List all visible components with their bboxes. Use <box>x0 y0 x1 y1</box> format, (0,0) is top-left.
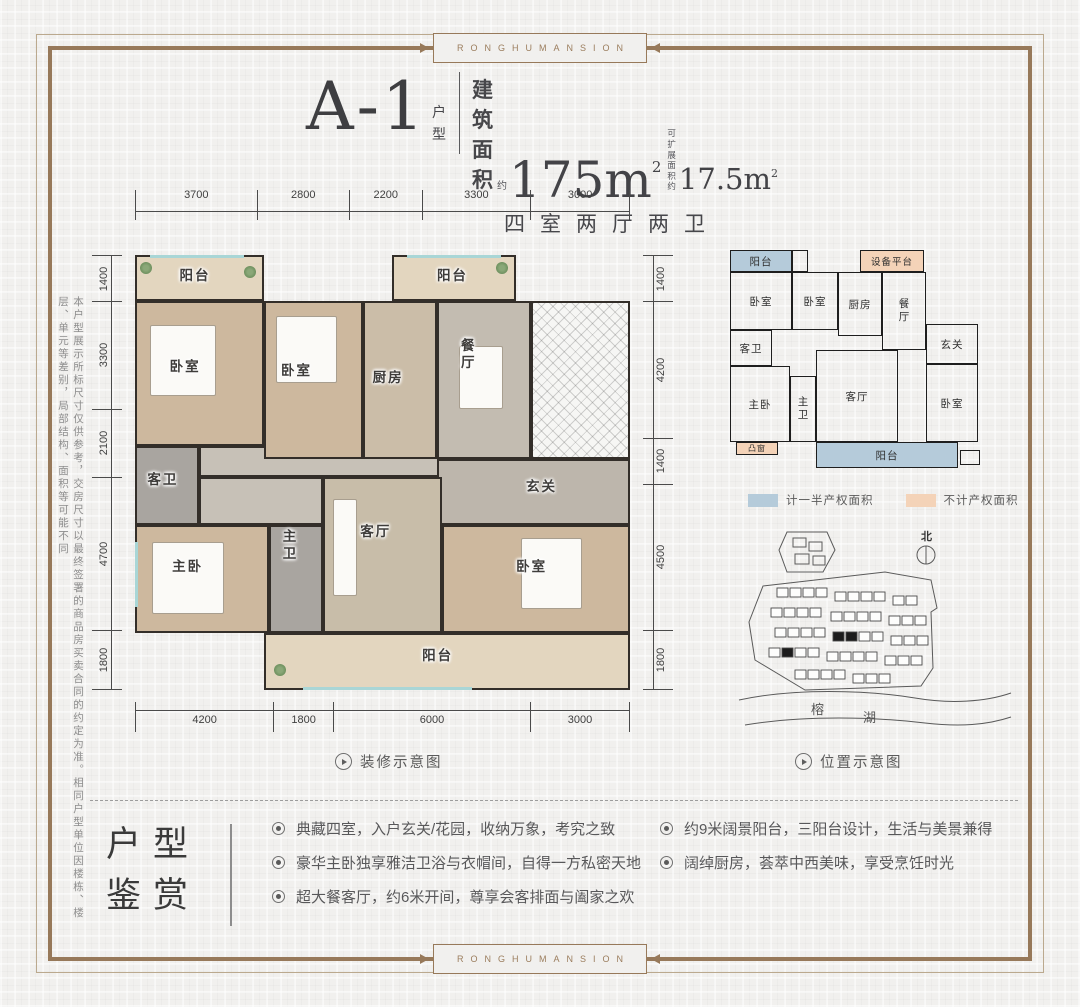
legend-label: 计一半产权面积 <box>786 492 874 508</box>
dim-label: 4500 <box>655 545 667 569</box>
header-divider <box>459 72 460 154</box>
feature-text: 典藏四室，入户玄关/花园，收纳万象，考究之致 <box>296 818 615 839</box>
unit-name: A-1 <box>306 68 427 145</box>
legend-item: 计一半产权面积 <box>748 492 874 508</box>
legend-swatch-half <box>748 494 778 507</box>
detached-building-cluster <box>779 532 835 572</box>
dim-label: 4200 <box>655 358 667 382</box>
features-list-left: 典藏四室，入户玄关/花园，收纳万象，考究之致 豪华主卧独享雅洁卫浴与衣帽间，自得… <box>272 818 652 907</box>
dim-label: 4200 <box>136 714 273 726</box>
sch-shaft <box>792 250 808 272</box>
dim-segment: 3300 <box>422 190 531 220</box>
room-label: 主卫 <box>797 396 809 421</box>
dim-segment: 2800 <box>257 190 349 220</box>
bullet-circle-icon <box>272 890 285 903</box>
dim-segment: 1800 <box>273 702 333 732</box>
room-label: 客卫 <box>740 341 763 356</box>
dimension-row-top: 3700 2800 2200 3300 3000 <box>135 190 630 220</box>
lake: 榕 湖 <box>739 692 1011 726</box>
arrow-left-icon <box>651 43 660 53</box>
room-label: 阳台 <box>437 264 468 284</box>
site-plan-map: 北 <box>735 528 1015 743</box>
window-strip <box>407 255 501 258</box>
dim-segment: 4500 <box>643 484 673 630</box>
room-label: 厨房 <box>849 297 872 312</box>
room-label: 玄关 <box>941 337 964 352</box>
features-title: 户型 鉴赏 <box>106 820 200 922</box>
schematic-floor-plan: 阳台 设备平台 卧室 卧室 厨房 餐厅 客卫 玄关 主卧 主卫 客厅 卧室 阳台… <box>722 246 1012 478</box>
dim-label: 2800 <box>258 189 349 201</box>
brand-name: RONGHUMANSION <box>433 33 647 63</box>
dim-label: 1800 <box>655 648 667 672</box>
dim-label: 2200 <box>350 189 422 201</box>
feature-text: 豪华主卧独享雅洁卫浴与衣帽间，自得一方私密天地 <box>296 852 641 873</box>
lake-label: 榕 <box>811 702 827 717</box>
room-label: 客卫 <box>147 468 178 488</box>
sch-dining: 餐厅 <box>882 272 926 350</box>
window-strip <box>135 542 138 607</box>
dimension-column-right: 1400 4200 1400 4500 1800 <box>643 255 673 690</box>
dim-label: 3000 <box>531 189 629 201</box>
expand-note-line2: 面积约 <box>667 160 676 192</box>
dim-label: 3700 <box>136 189 257 201</box>
area-prefix: 建筑面积 <box>472 74 495 204</box>
room-label: 主卧 <box>172 555 203 575</box>
sch-bedroom-2: 卧室 <box>792 272 838 330</box>
feature-item: 阔绰厨房，荟萃中西美味，享受烹饪时光 <box>660 852 1020 873</box>
dim-label: 3000 <box>531 714 629 726</box>
window-strip <box>150 255 244 258</box>
room-label: 餐厅 <box>898 298 910 323</box>
dim-segment: 1800 <box>92 630 122 690</box>
sch-equipment-platform: 设备平台 <box>860 250 924 272</box>
feature-text: 阔绰厨房，荟萃中西美味，享受烹饪时光 <box>684 852 954 873</box>
dim-segment: 3000 <box>530 702 630 732</box>
dim-label: 1400 <box>655 449 667 473</box>
sch-bay-window: 凸窗 <box>736 442 778 455</box>
feature-item: 豪华主卧独享雅洁卫浴与衣帽间，自得一方私密天地 <box>272 852 652 873</box>
sch-bedroom-1: 卧室 <box>730 272 792 330</box>
features-list-right: 约9米阔景阳台，三阳台设计，生活与美景兼得 阔绰厨房，荟萃中西美味，享受烹饪时光 <box>660 818 1020 873</box>
dim-label: 3300 <box>98 343 110 367</box>
legend-swatch-none <box>906 494 936 507</box>
arrow-right-icon <box>420 954 429 964</box>
sch-balcony-top: 阳台 <box>730 250 792 272</box>
window-strip <box>303 687 471 690</box>
site-buildings <box>769 588 928 683</box>
room-label: 卧室 <box>170 355 201 375</box>
dim-label: 4700 <box>98 542 110 566</box>
dim-segment: 3300 <box>92 301 122 408</box>
features-title-line2: 鉴赏 <box>106 871 200 922</box>
site-plan-caption: 位置示意图 <box>795 751 903 772</box>
feature-item: 典藏四室，入户玄关/花园，收纳万象，考究之致 <box>272 818 652 839</box>
feature-text: 约9米阔景阳台，三阳台设计，生活与美景兼得 <box>684 818 992 839</box>
dim-segment: 4200 <box>643 301 673 437</box>
sch-bedroom-3: 卧室 <box>926 364 978 442</box>
dim-segment: 1400 <box>92 255 122 301</box>
dim-segment: 3700 <box>135 190 257 220</box>
bullet-circle-icon <box>660 822 673 835</box>
sch-master-bath: 主卫 <box>790 376 816 442</box>
plant-icon <box>244 266 256 278</box>
room-label: 卧室 <box>804 294 827 309</box>
features-title-line1: 户型 <box>106 820 200 871</box>
brand-ribbon-bottom: RONGHUMANSION <box>420 942 660 976</box>
stair-elevator-shaft <box>531 301 630 460</box>
dim-segment: 1400 <box>643 255 673 301</box>
disclaimer-vertical-text: 本户型展示所标尺寸仅供参考，交房尺寸以最终签署的商品房买卖合同的约定为准。相同户… <box>56 296 86 944</box>
bullet-circle-icon <box>272 856 285 869</box>
bed-icon <box>152 542 223 614</box>
area-legend: 计一半产权面积 不计产权面积 <box>748 492 1019 508</box>
main-floor-plan-area: 3700 2800 2200 3300 3000 1400 3300 2100 … <box>92 190 677 752</box>
brand-name: RONGHUMANSION <box>433 944 647 974</box>
sofa-icon <box>333 499 357 597</box>
room-label: 餐厅 <box>459 338 476 372</box>
dim-segment: 3000 <box>530 190 630 220</box>
bullet-circle-icon <box>272 822 285 835</box>
dim-label: 3300 <box>423 189 531 201</box>
dim-segment: 4700 <box>92 477 122 630</box>
play-circle-icon <box>795 753 812 770</box>
plant-icon <box>274 664 286 676</box>
plant-icon <box>140 262 152 274</box>
north-compass: 北 <box>917 529 935 564</box>
north-label: 北 <box>921 529 932 543</box>
dim-segment: 4200 <box>135 702 273 732</box>
room-label: 卧室 <box>941 396 964 411</box>
expand-superscript: 2 <box>771 167 778 204</box>
room-label: 设备平台 <box>871 254 913 268</box>
dim-label: 1800 <box>274 714 333 726</box>
sch-master-bedroom: 主卧 <box>730 366 790 442</box>
dim-segment: 1400 <box>643 438 673 484</box>
dim-label: 6000 <box>334 714 530 726</box>
arrow-right-icon <box>420 43 429 53</box>
dim-segment: 1800 <box>643 630 673 690</box>
feature-item: 超大餐客厅，约6米开间，尊享会客排面与阖家之欢 <box>272 886 652 907</box>
sch-balcony-bottom: 阳台 <box>816 442 958 468</box>
room-label: 客厅 <box>360 520 391 540</box>
feature-text: 超大餐客厅，约6米开间，尊享会客排面与阖家之欢 <box>296 886 634 907</box>
sch-guest-bath: 客卫 <box>730 330 772 366</box>
features-divider <box>230 824 232 926</box>
room-label: 卧室 <box>750 294 773 309</box>
room-label: 主卧 <box>749 397 772 412</box>
dim-segment: 2200 <box>349 190 422 220</box>
dim-label: 1800 <box>98 648 110 672</box>
lake-label: 湖 <box>863 710 879 725</box>
brand-ribbon-top: RONGHUMANSION <box>420 31 660 65</box>
sch-living: 客厅 <box>816 350 898 442</box>
sch-foyer: 玄关 <box>926 324 978 364</box>
area-line: 建筑面积 约 175m 2 可扩展 面积约 17.5m 2 <box>472 74 752 204</box>
decorated-floor-plan: 阳台 卧室 卧室 厨房 餐厅 阳台 客卫 玄关 主卧 主卫 客厅 卧室 阳台 <box>135 255 630 690</box>
expand-note-line1: 可扩展 <box>667 128 676 160</box>
feature-item: 约9米阔景阳台，三阳台设计，生活与美景兼得 <box>660 818 1020 839</box>
room-corridor <box>199 477 323 525</box>
legend-label: 不计产权面积 <box>944 492 1019 508</box>
room-label: 玄关 <box>526 475 557 495</box>
sch-corner-box <box>960 450 980 465</box>
room-label: 阳台 <box>422 644 453 664</box>
dim-segment: 2100 <box>92 409 122 478</box>
room-label: 凸窗 <box>748 443 766 454</box>
arrow-left-icon <box>651 954 660 964</box>
room-label: 卧室 <box>281 359 312 379</box>
room-label: 主卫 <box>281 529 298 563</box>
dimension-column-left: 1400 3300 2100 4700 1800 <box>92 255 122 690</box>
legend-item: 不计产权面积 <box>906 492 1019 508</box>
play-circle-icon <box>335 753 352 770</box>
dim-label: 1400 <box>98 266 110 290</box>
bullet-circle-icon <box>660 856 673 869</box>
room-label: 阳台 <box>876 448 899 463</box>
expand-value: 17.5m <box>679 162 771 204</box>
caption-text: 装修示意图 <box>360 751 443 772</box>
dashed-divider <box>90 800 1018 801</box>
room-label: 阳台 <box>180 264 211 284</box>
room-label: 厨房 <box>373 366 404 386</box>
poster-canvas: RONGHUMANSION RONGHUMANSION A-1 户型 建筑面积 … <box>0 0 1080 1007</box>
room-label: 客厅 <box>846 389 869 404</box>
room-label: 阳台 <box>750 254 773 269</box>
unit-type-label: 户型 <box>432 102 449 145</box>
plant-icon <box>496 262 508 274</box>
dim-label: 2100 <box>98 431 110 455</box>
sch-kitchen: 厨房 <box>838 272 882 336</box>
room-label: 卧室 <box>516 555 547 575</box>
dim-segment: 6000 <box>333 702 530 732</box>
dimension-row-bottom: 4200 1800 6000 3000 <box>135 702 630 732</box>
caption-text: 位置示意图 <box>820 751 903 772</box>
dim-label: 1400 <box>655 266 667 290</box>
main-plan-caption: 装修示意图 <box>335 751 443 772</box>
